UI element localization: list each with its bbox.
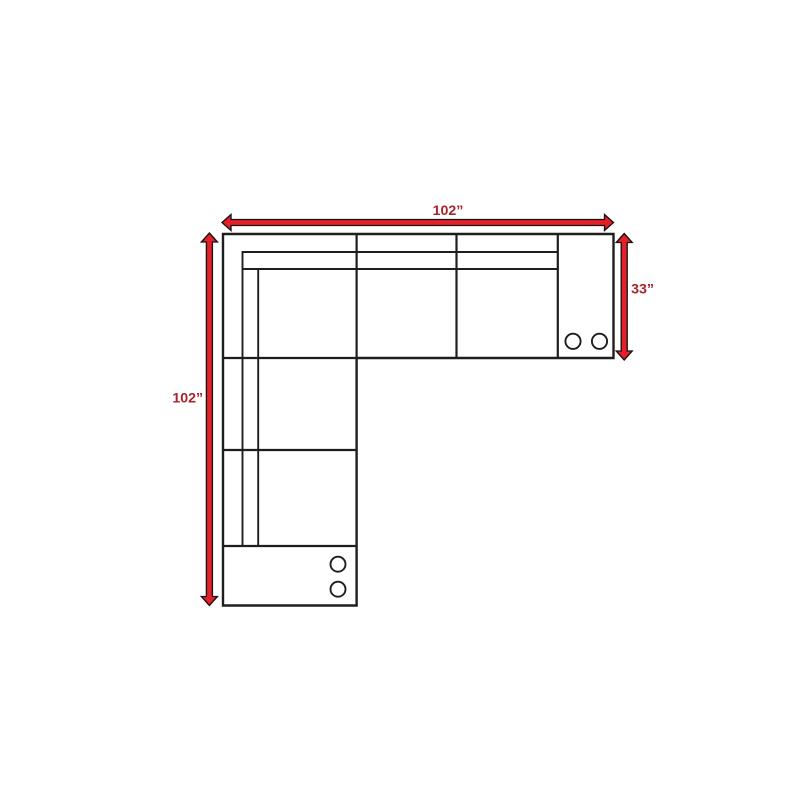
svg-text:33”: 33” [631, 281, 654, 297]
svg-text:102”: 102” [172, 390, 203, 406]
svg-text:102”: 102” [433, 203, 464, 219]
